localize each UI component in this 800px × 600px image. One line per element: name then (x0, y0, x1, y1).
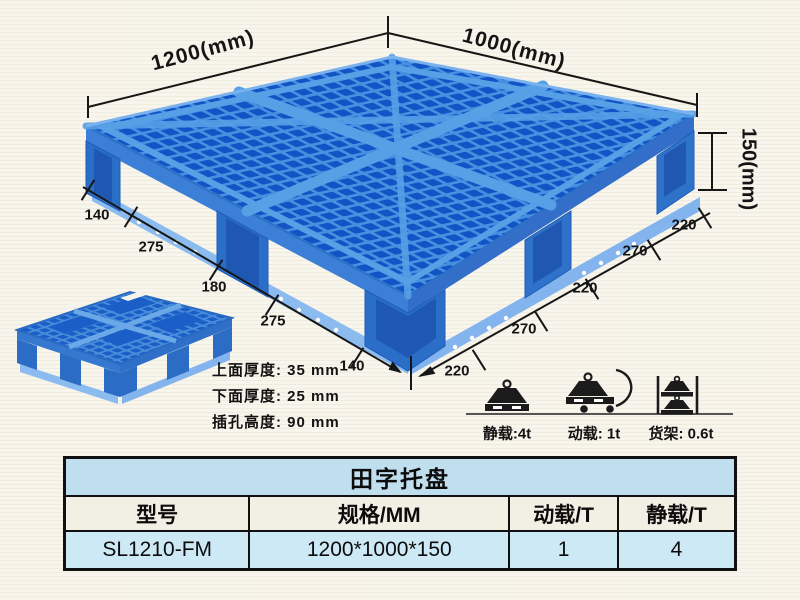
dim-label-left-275a: 275 (138, 239, 163, 256)
spec-table: 田字托盘 型号 规格/MM 动载/T 静载/T SL1210-FM 1200*1… (63, 456, 737, 571)
header-static-load: 静载/T (619, 497, 734, 530)
rack-load-label: 货架: 0.6t (648, 423, 713, 444)
thickness-notes: 上面厚度: 35 mm 下面厚度: 25 mm 插孔高度: 90 mm (212, 358, 340, 436)
spec-table-data-row: SL1210-FM 1200*1000*150 1 4 (66, 532, 734, 568)
spec-table-header-row: 型号 规格/MM 动载/T 静载/T (66, 497, 734, 532)
note-top-thickness: 上面厚度: 35 mm (212, 358, 340, 384)
spec-table-title: 田字托盘 (66, 459, 734, 497)
dim-label-left-140a: 140 (84, 207, 109, 224)
load-icons (466, 370, 733, 415)
dim-label-150mm: 150(mm) (737, 128, 760, 210)
dim-label-left-180: 180 (201, 279, 226, 296)
note-bottom-thickness: 下面厚度: 25 mm (212, 384, 340, 410)
note-fork-hole-height: 插孔高度: 90 mm (212, 410, 340, 436)
dim-label-right-270a: 270 (622, 243, 647, 260)
dim-label-right-220a: 220 (671, 217, 696, 234)
pallet-spec-sheet: 1200(mm) 1000(mm) 150(mm) 140 275 180 27… (0, 0, 800, 600)
dim-label-left-140b: 140 (339, 358, 364, 375)
static-load-label: 静载:4t (483, 423, 531, 444)
dim-label-left-275b: 275 (260, 313, 285, 330)
rack-load-icon (658, 376, 697, 415)
dim-label-right-220b: 220 (572, 280, 597, 297)
small-pallet-illustration (17, 292, 232, 404)
header-spec-mm: 规格/MM (250, 497, 510, 530)
header-model: 型号 (66, 497, 250, 530)
cell-spec-mm: 1200*1000*150 (250, 532, 510, 568)
cell-model: SL1210-FM (66, 532, 250, 568)
cell-dynamic-load: 1 (510, 532, 619, 568)
dynamic-load-label: 动载: 1t (568, 423, 621, 444)
dim-label-right-270b: 270 (511, 321, 536, 338)
cell-static-load: 4 (619, 532, 734, 568)
dynamic-load-icon (566, 370, 631, 413)
static-load-icon (485, 381, 529, 412)
header-dynamic-load: 动载/T (510, 497, 619, 530)
dim-label-right-220c: 220 (444, 363, 469, 380)
